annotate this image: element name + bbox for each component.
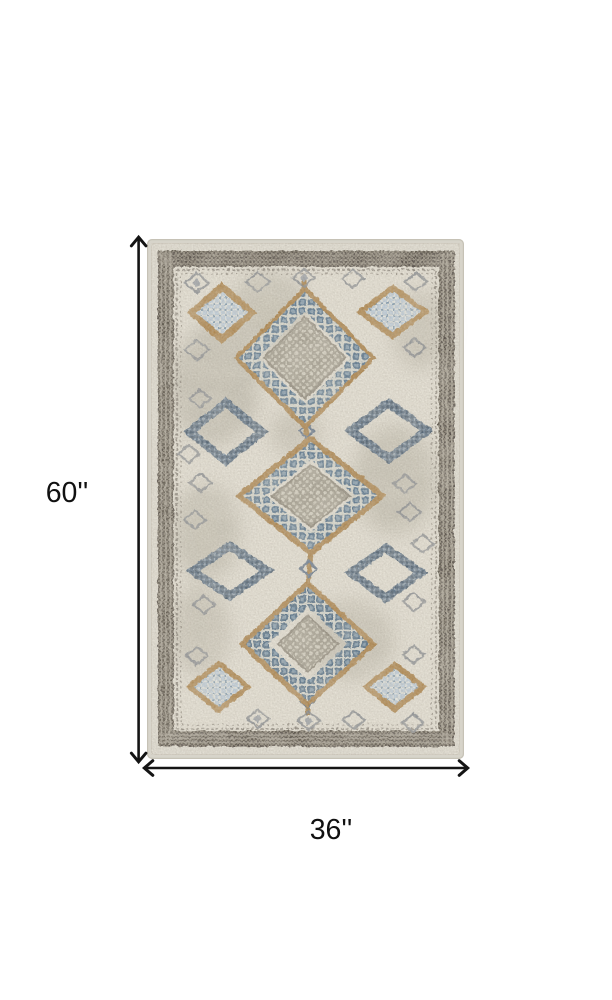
svg-text:60'': 60'' [46,477,89,509]
svg-text:36'': 36'' [310,814,353,846]
